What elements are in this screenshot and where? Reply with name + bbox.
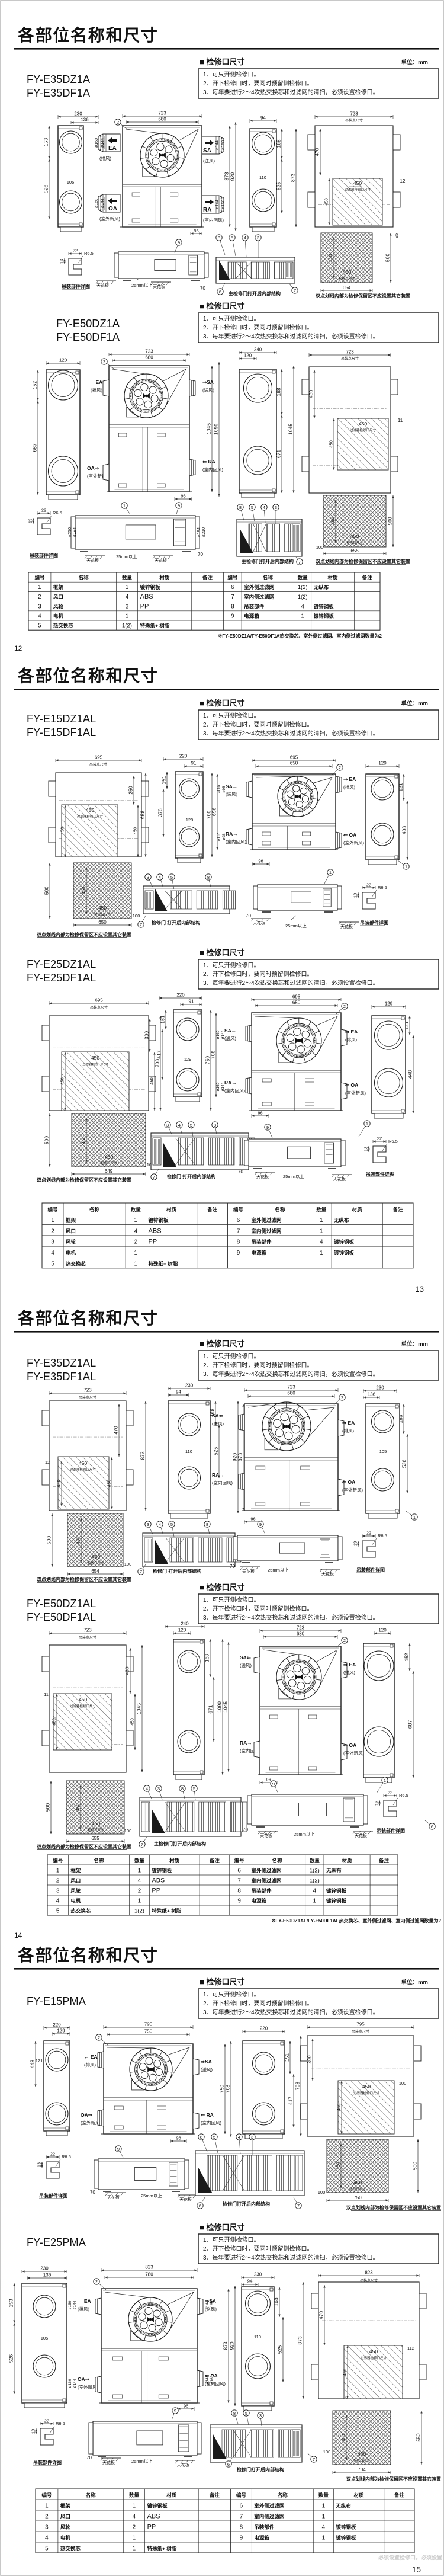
svg-text:450: 450 — [353, 180, 362, 186]
svg-text:电源箱: 电源箱 — [252, 1898, 267, 1904]
svg-text:11: 11 — [398, 418, 403, 423]
svg-text:吊装部件详图: 吊装部件详图 — [30, 552, 58, 558]
svg-text:3: 3 — [251, 2135, 253, 2140]
svg-text:795: 795 — [144, 2022, 153, 2027]
svg-text:编号: 编号 — [227, 575, 238, 581]
svg-text:数量: 数量 — [316, 1207, 327, 1212]
svg-text:ø144: ø144 — [205, 2375, 210, 2384]
svg-text:主检修门打开后内部结构: 主检修门打开后内部结构 — [242, 558, 294, 564]
svg-text:电机: 电机 — [66, 1250, 76, 1256]
svg-text:450: 450 — [79, 1460, 87, 1466]
svg-text:1: 1 — [329, 870, 332, 875]
svg-text:112: 112 — [407, 2345, 414, 2351]
svg-text:1: 1 — [126, 613, 129, 620]
svg-text:吊装点尺寸: 吊装点尺寸 — [79, 1635, 96, 1640]
svg-text:526: 526 — [43, 185, 49, 193]
svg-text:名称: 名称 — [263, 575, 274, 581]
svg-text:RA: RA — [203, 207, 211, 213]
svg-text:4: 4 — [56, 1898, 60, 1905]
svg-text:22: 22 — [41, 508, 46, 513]
svg-text:材质: 材质 — [353, 2492, 365, 2498]
svg-text:450: 450 — [324, 198, 329, 206]
svg-text:检修门打开后内部结构: 检修门打开后内部结构 — [223, 2201, 270, 2207]
svg-text:6: 6 — [431, 1824, 433, 1829]
svg-text:4: 4 — [178, 1122, 181, 1128]
svg-text:25mm以上: 25mm以上 — [131, 283, 153, 288]
svg-text:天花板: 天花板 — [179, 2197, 192, 2202]
svg-text:94: 94 — [176, 1390, 181, 1395]
svg-text:R6.5: R6.5 — [378, 885, 387, 890]
svg-text:ø98: ø98 — [222, 786, 226, 793]
svg-text:9: 9 — [174, 2408, 176, 2414]
svg-text:框架: 框架 — [60, 2503, 71, 2509]
svg-text:1、可只开侧检修口。: 1、可只开侧检修口。 — [203, 1596, 260, 1604]
svg-text:1、可只开侧检修口。: 1、可只开侧检修口。 — [203, 1352, 260, 1360]
svg-text:96: 96 — [176, 2136, 181, 2141]
svg-text:FY-E35DF1AL: FY-E35DF1AL — [27, 1370, 96, 1383]
svg-text:450: 450 — [86, 807, 94, 813]
svg-text:编号: 编号 — [48, 1207, 59, 1212]
svg-text:风轮: 风轮 — [66, 1239, 76, 1245]
svg-text:ø144: ø144 — [221, 1082, 225, 1091]
svg-text:9: 9 — [231, 613, 234, 620]
svg-text:220: 220 — [260, 2026, 268, 2031]
svg-text:OA⇒: OA⇒ — [87, 465, 99, 471]
svg-text:230: 230 — [40, 2266, 49, 2271]
svg-text:ø144: ø144 — [215, 200, 220, 209]
svg-text:5: 5 — [231, 235, 233, 241]
svg-text:450: 450 — [362, 2084, 371, 2089]
svg-text:9: 9 — [178, 503, 180, 508]
svg-text:ø144: ø144 — [101, 138, 105, 148]
svg-text:(排风): (排风) — [99, 155, 111, 161]
svg-text:数量: 数量 — [318, 2492, 329, 2498]
svg-text:151: 151 — [161, 776, 167, 784]
svg-text:22: 22 — [50, 2152, 55, 2157]
svg-text:室外侧过滤网: 室外侧过滤网 — [252, 1868, 282, 1874]
svg-text:450: 450 — [75, 1804, 81, 1812]
svg-text:650: 650 — [292, 1000, 301, 1006]
svg-text:2: 2 — [117, 120, 119, 125]
svg-text:吊装部件详图: 吊装部件详图 — [356, 1567, 385, 1573]
svg-text:1、可只开侧检修口。: 1、可只开侧检修口。 — [203, 712, 260, 719]
svg-text:1045: 1045 — [206, 423, 212, 434]
svg-text:镀锌钢板: 镀锌钢板 — [334, 1239, 355, 1245]
svg-text:723: 723 — [350, 111, 358, 117]
svg-text:25mm以上: 25mm以上 — [116, 554, 137, 559]
svg-text:1045: 1045 — [136, 1703, 142, 1714]
svg-text:2: 2 — [341, 1395, 343, 1400]
svg-text:4: 4 — [244, 235, 246, 241]
svg-text:105: 105 — [41, 2335, 49, 2341]
svg-text:500: 500 — [45, 1803, 51, 1812]
svg-text:152: 152 — [32, 381, 38, 389]
svg-text:⇐ RA: ⇐ RA — [202, 459, 215, 465]
svg-text:天花板: 天花板 — [242, 1569, 255, 1574]
svg-text:70: 70 — [246, 913, 251, 919]
svg-text:96: 96 — [194, 228, 198, 233]
svg-text:680: 680 — [158, 117, 166, 122]
svg-text:750: 750 — [219, 2085, 225, 2093]
svg-text:3、每年要进行2～4次热交换芯和过滤网的清扫，必须设置检修口: 3、每年要进行2～4次热交换芯和过滤网的清扫，必须设置检修口。 — [203, 1614, 379, 1621]
svg-text:1: 1 — [322, 2503, 326, 2510]
svg-text:120: 120 — [244, 353, 252, 359]
svg-text:■ 检修口尺寸: ■ 检修口尺寸 — [200, 1977, 244, 1986]
svg-text:ø160: ø160 — [95, 199, 99, 208]
svg-text:525: 525 — [213, 1447, 219, 1455]
svg-text:120: 120 — [178, 1628, 186, 1633]
svg-text:105: 105 — [379, 1449, 387, 1454]
svg-text:名称: 名称 — [86, 2492, 96, 2498]
svg-text:100: 100 — [399, 2081, 407, 2086]
svg-text:70: 70 — [198, 552, 203, 557]
svg-text:680: 680 — [297, 1631, 305, 1637]
svg-text:(室内回风): (室内回风) — [226, 839, 246, 844]
svg-text:450: 450 — [81, 1137, 86, 1144]
svg-text:镀锌钢板: 镀锌钢板 — [149, 1217, 169, 1223]
svg-text:备注: 备注 — [362, 575, 373, 581]
svg-text:450: 450 — [336, 2162, 341, 2170]
svg-text:873: 873 — [290, 174, 296, 182]
svg-text:双点划线内部为检修保留区不应设置其它装置: 双点划线内部为检修保留区不应设置其它装置 — [346, 2476, 441, 2482]
svg-text:(室内回风): (室内回风) — [224, 1087, 245, 1093]
svg-text:4: 4 — [322, 2524, 326, 2531]
svg-text:13: 13 — [28, 519, 33, 523]
svg-text:8: 8 — [237, 1239, 240, 1246]
svg-text:2、开下检修口时，要同时预留侧检修口。: 2、开下检修口时，要同时预留侧检修口。 — [203, 79, 313, 87]
svg-text:ø144: ø144 — [73, 2379, 77, 2388]
svg-text:(送风): (送风) — [202, 387, 214, 393]
svg-text:名称: 名称 — [89, 1207, 100, 1212]
svg-text:1: 1 — [320, 1228, 323, 1234]
svg-text:2: 2 — [138, 1888, 141, 1895]
svg-text:526: 526 — [401, 1460, 407, 1468]
svg-text:(排风): (排风) — [345, 1036, 357, 1042]
svg-text:检修门打开后内部结构: 检修门打开后内部结构 — [237, 2466, 284, 2472]
svg-text:天花板: 天花板 — [102, 2460, 115, 2465]
svg-text:22: 22 — [73, 248, 78, 254]
svg-text:6: 6 — [240, 2503, 243, 2510]
svg-text:7: 7 — [240, 2514, 243, 2520]
svg-text:13: 13 — [363, 1147, 369, 1151]
svg-text:(排风): (排风) — [343, 1669, 355, 1675]
svg-text:4: 4 — [38, 613, 41, 620]
svg-text:吊装部件: 吊装部件 — [254, 2524, 275, 2530]
svg-text:450: 450 — [79, 1697, 87, 1703]
svg-text:723: 723 — [83, 1628, 92, 1633]
svg-text:680: 680 — [287, 1391, 295, 1396]
svg-text:3: 3 — [166, 1122, 169, 1128]
svg-text:1: 1 — [133, 2535, 136, 2542]
svg-text:5: 5 — [170, 1522, 173, 1527]
svg-text:96: 96 — [258, 859, 263, 864]
svg-text:电源箱: 电源箱 — [244, 613, 259, 619]
svg-text:5: 5 — [170, 875, 173, 880]
svg-text:4: 4 — [133, 2514, 136, 2520]
svg-text:ø194: ø194 — [73, 527, 77, 537]
svg-text:2: 2 — [133, 2524, 136, 2531]
svg-text:主检修门打开后内部结构: 主检修门打开后内部结构 — [154, 1841, 206, 1847]
svg-text:1: 1 — [38, 584, 41, 591]
svg-text:110: 110 — [259, 175, 266, 180]
svg-text:470: 470 — [314, 148, 320, 156]
svg-text:单位：mm: 单位：mm — [401, 1340, 428, 1348]
svg-text:22: 22 — [44, 2418, 49, 2424]
svg-text:129: 129 — [184, 1057, 192, 1062]
svg-text:数量: 数量 — [131, 1207, 141, 1212]
svg-text:数量: 数量 — [122, 575, 133, 581]
svg-text:框架: 框架 — [66, 1217, 76, 1223]
svg-text:吊装部件详图: 吊装部件详图 — [377, 1828, 405, 1833]
svg-text:220: 220 — [53, 2023, 61, 2028]
svg-text:4: 4 — [159, 1522, 161, 1527]
svg-text:7: 7 — [153, 1175, 155, 1180]
svg-text:必须设置检修口。必须设置: 必须设置检修口。必须设置 — [378, 2554, 442, 2561]
svg-text:1: 1 — [320, 1217, 323, 1224]
svg-text:双点划线内部为检修保留区不应设置其它装置: 双点划线内部为检修保留区不应设置其它装置 — [37, 932, 131, 937]
svg-text:1: 1 — [134, 1250, 138, 1256]
svg-text:2: 2 — [126, 603, 129, 610]
svg-text:⇒ EA: ⇒ EA — [342, 1420, 355, 1426]
svg-text:450: 450 — [56, 1480, 62, 1487]
svg-text:R6.5: R6.5 — [53, 510, 62, 516]
svg-text:天花板: 天花板 — [340, 924, 353, 929]
svg-text:2: 2 — [343, 1004, 346, 1009]
svg-text:4: 4 — [313, 1888, 317, 1895]
svg-text:编号: 编号 — [233, 1207, 244, 1212]
svg-text:9: 9 — [259, 1522, 262, 1527]
svg-text:(排风): (排风) — [84, 2062, 96, 2068]
svg-text:ø194: ø194 — [197, 527, 201, 537]
svg-text:3: 3 — [45, 2524, 49, 2531]
svg-text:过滤器检修口尺寸: 过滤器检修口尺寸 — [345, 187, 371, 192]
svg-text:1(2): 1(2) — [298, 594, 308, 600]
svg-text:25mm以上: 25mm以上 — [283, 1174, 304, 1179]
svg-text:13: 13 — [415, 1285, 424, 1294]
svg-text:ø160: ø160 — [216, 1030, 220, 1039]
svg-text:电机: 电机 — [70, 1898, 81, 1904]
svg-text:← EA: ← EA — [78, 2298, 91, 2304]
svg-text:5: 5 — [251, 505, 253, 510]
svg-text:153: 153 — [8, 2299, 14, 2307]
svg-text:1090: 1090 — [213, 424, 219, 435]
svg-text:4: 4 — [134, 1228, 138, 1234]
svg-text:470: 470 — [113, 1426, 119, 1434]
svg-text:特殊纸+ 树脂: 特殊纸+ 树脂 — [140, 623, 170, 629]
svg-text:⇒ EA: ⇒ EA — [343, 1662, 356, 1668]
svg-text:153: 153 — [43, 138, 49, 146]
svg-text:11: 11 — [44, 1692, 49, 1697]
svg-text:8: 8 — [206, 1522, 208, 1527]
svg-text:2: 2 — [339, 765, 341, 770]
svg-text:热交换芯: 热交换芯 — [70, 1908, 91, 1914]
svg-text:4: 4 — [138, 1878, 141, 1884]
svg-text:吊装部件: 吊装部件 — [252, 1239, 272, 1245]
svg-text:风口: 风口 — [60, 2514, 70, 2520]
svg-text:378: 378 — [157, 808, 163, 817]
svg-text:特殊纸+ 树脂: 特殊纸+ 树脂 — [149, 1260, 178, 1266]
svg-text:3: 3 — [51, 1239, 54, 1246]
svg-text:14: 14 — [14, 1931, 22, 1940]
svg-text:(室内回风): (室内回风) — [202, 466, 223, 472]
svg-text:天花板: 天花板 — [107, 2194, 120, 2200]
svg-text:过滤器检修口尺寸: 过滤器检修口尺寸 — [82, 1062, 109, 1067]
svg-text:6: 6 — [231, 584, 234, 591]
svg-text:※FY-E50DZ1A/FY-E50DF1A热交换芯、室外侧: ※FY-E50DZ1A/FY-E50DF1A热交换芯、室外侧过滤网、室内侧过滤网… — [218, 633, 382, 639]
svg-text:2: 2 — [343, 1638, 346, 1643]
svg-text:室外侧过滤网: 室外侧过滤网 — [244, 584, 274, 590]
svg-text:1: 1 — [366, 1121, 368, 1127]
svg-text:无纵布: 无纵布 — [326, 1868, 342, 1874]
svg-text:PP: PP — [140, 603, 149, 610]
svg-text:SA⇐: SA⇐ — [212, 1413, 224, 1419]
svg-text:检修口尺寸: 检修口尺寸 — [94, 912, 111, 917]
svg-text:1: 1 — [123, 503, 126, 508]
svg-text:ø144: ø144 — [215, 140, 220, 150]
svg-text:1(2): 1(2) — [122, 623, 132, 629]
svg-text:230: 230 — [74, 111, 82, 117]
svg-text:96: 96 — [181, 494, 185, 499]
svg-text:编号: 编号 — [236, 2492, 247, 2498]
svg-text:各部位名称和尺寸: 各部位名称和尺寸 — [17, 25, 159, 44]
svg-text:吊装点尺寸: 吊装点尺寸 — [352, 2029, 369, 2034]
svg-text:671: 671 — [208, 1705, 214, 1713]
svg-text:吊装部件详图: 吊装部件详图 — [360, 920, 388, 926]
svg-text:镀锌钢板: 镀锌钢板 — [314, 603, 334, 609]
svg-text:2: 2 — [134, 1239, 138, 1246]
svg-text:电机: 电机 — [60, 2535, 71, 2541]
svg-text:408: 408 — [401, 826, 407, 834]
svg-text:ø160: ø160 — [221, 140, 226, 150]
svg-text:FY-E50DF1AL: FY-E50DF1AL — [27, 1611, 96, 1623]
svg-text:FY-E15DF1AL: FY-E15DF1AL — [27, 726, 96, 738]
svg-text:电机: 电机 — [53, 613, 64, 619]
svg-text:795: 795 — [356, 2022, 365, 2027]
svg-text:热交换芯: 热交换芯 — [53, 623, 74, 629]
svg-text:■ 检修口尺寸: ■ 检修口尺寸 — [200, 1583, 244, 1592]
svg-text:5: 5 — [38, 623, 41, 629]
svg-text:EA: EA — [108, 145, 117, 152]
svg-text:1: 1 — [301, 613, 304, 620]
svg-text:723: 723 — [158, 111, 166, 116]
svg-text:750: 750 — [353, 2195, 362, 2200]
svg-text:695: 695 — [290, 755, 298, 760]
svg-text:框架: 框架 — [53, 584, 64, 590]
svg-text:95: 95 — [394, 233, 399, 238]
svg-text:备注: 备注 — [378, 1858, 390, 1864]
svg-text:13: 13 — [37, 2162, 42, 2167]
svg-text:风轮: 风轮 — [60, 2524, 71, 2530]
svg-text:417: 417 — [288, 2097, 294, 2105]
svg-text:⇐ OA: ⇐ OA — [345, 1082, 358, 1088]
svg-text:镀锌钢板: 镀锌钢板 — [314, 613, 334, 619]
svg-text:风口: 风口 — [53, 594, 63, 600]
svg-text:500: 500 — [385, 254, 391, 262]
svg-text:687: 687 — [407, 1720, 413, 1729]
svg-text:(室外新风): (室外新风) — [345, 1090, 366, 1096]
svg-text:1: 1 — [313, 1898, 317, 1905]
svg-text:2: 2 — [51, 1228, 54, 1234]
svg-text:70: 70 — [86, 2455, 92, 2460]
svg-text:ø210: ø210 — [68, 527, 72, 537]
svg-text:7: 7 — [231, 594, 234, 600]
svg-text:特殊纸+ 树脂: 特殊纸+ 树脂 — [147, 2546, 177, 2552]
svg-text:PP: PP — [147, 2524, 156, 2531]
svg-text:镀锌钢板: 镀锌钢板 — [326, 1888, 347, 1894]
svg-text:450: 450 — [92, 1820, 100, 1826]
svg-text:4: 4 — [159, 875, 161, 880]
svg-text:ø160: ø160 — [68, 2379, 72, 2388]
svg-text:过滤器检修口尺寸: 过滤器检修口尺寸 — [70, 1467, 96, 1472]
svg-text:检修门 打开后内部结构: 检修门 打开后内部结构 — [167, 1173, 215, 1179]
svg-text:⇒ EA: ⇒ EA — [343, 776, 356, 782]
svg-text:名称: 名称 — [278, 2492, 288, 2498]
svg-text:450: 450 — [98, 905, 107, 911]
svg-text:(室外新风): (室外新风) — [99, 216, 120, 222]
svg-text:R6.5: R6.5 — [62, 2154, 71, 2159]
svg-text:25mm以上: 25mm以上 — [141, 2193, 162, 2199]
svg-text:5: 5 — [56, 1908, 60, 1915]
svg-text:RA→: RA→ — [224, 1080, 237, 1086]
svg-text:7: 7 — [140, 922, 142, 927]
svg-text:22: 22 — [366, 882, 371, 888]
svg-text:680: 680 — [145, 355, 153, 360]
svg-text:450: 450 — [76, 1537, 81, 1544]
svg-text:1、可只开侧检修口。: 1、可只开侧检修口。 — [203, 2236, 260, 2244]
svg-text:检修口尺寸: 检修口尺寸 — [346, 540, 363, 545]
svg-text:654: 654 — [343, 285, 351, 290]
svg-text:■ 检修口尺寸: ■ 检修口尺寸 — [200, 2223, 244, 2232]
svg-text:双点划线内部为检修保留区不应设置其它装置: 双点划线内部为检修保留区不应设置其它装置 — [346, 2204, 441, 2210]
svg-text:22: 22 — [366, 1531, 371, 1536]
svg-text:过滤器检修口尺寸: 过滤器检修口尺寸 — [350, 428, 377, 433]
svg-text:1: 1 — [138, 1868, 141, 1874]
svg-text:检修门 打开后内部结构: 检修门 打开后内部结构 — [152, 920, 200, 926]
svg-text:550: 550 — [416, 2433, 422, 2441]
svg-text:(送风): (送风) — [203, 158, 215, 164]
svg-text:1: 1 — [51, 1217, 54, 1224]
svg-text:数量: 数量 — [298, 575, 308, 581]
svg-text:708: 708 — [210, 1051, 216, 1059]
svg-text:1: 1 — [134, 1217, 138, 1224]
svg-text:3: 3 — [56, 1888, 60, 1895]
svg-text:3: 3 — [257, 235, 259, 241]
svg-text:无纵布: 无纵布 — [335, 2503, 351, 2509]
svg-text:名称: 名称 — [272, 1858, 283, 1864]
svg-text:FY-E35DF1A: FY-E35DF1A — [27, 87, 91, 99]
svg-text:450: 450 — [60, 827, 65, 835]
svg-text:编号: 编号 — [41, 2492, 52, 2498]
svg-text:天花板: 天花板 — [321, 1571, 334, 1576]
svg-text:1: 1 — [126, 584, 129, 591]
svg-text:525: 525 — [277, 2345, 283, 2354]
svg-text:吊装部件详图: 吊装部件详图 — [62, 283, 90, 289]
svg-text:过滤器检修口尺寸: 过滤器检修口尺寸 — [361, 2356, 387, 2360]
svg-text:检修口尺寸: 检修口尺寸 — [88, 1561, 104, 1566]
svg-text:6: 6 — [237, 1217, 240, 1224]
svg-text:⇒SA: ⇒SA — [201, 2059, 212, 2065]
svg-text:R6.5: R6.5 — [378, 1533, 387, 1538]
svg-text:2: 2 — [38, 594, 41, 600]
svg-text:2、开下检修口时，要同时预留侧检修口。: 2、开下检修口时，要同时预留侧检修口。 — [203, 1605, 313, 1612]
svg-text:吊装部件: 吊装部件 — [252, 1888, 272, 1894]
svg-text:热交换芯: 热交换芯 — [66, 1260, 86, 1266]
svg-text:1090: 1090 — [217, 1701, 223, 1713]
svg-text:1: 1 — [413, 1515, 416, 1520]
svg-text:450: 450 — [60, 1077, 65, 1085]
svg-text:■ 检修口尺寸: ■ 检修口尺寸 — [200, 699, 244, 708]
svg-text:1、可只开侧检修口。: 1、可只开侧检修口。 — [203, 961, 260, 969]
